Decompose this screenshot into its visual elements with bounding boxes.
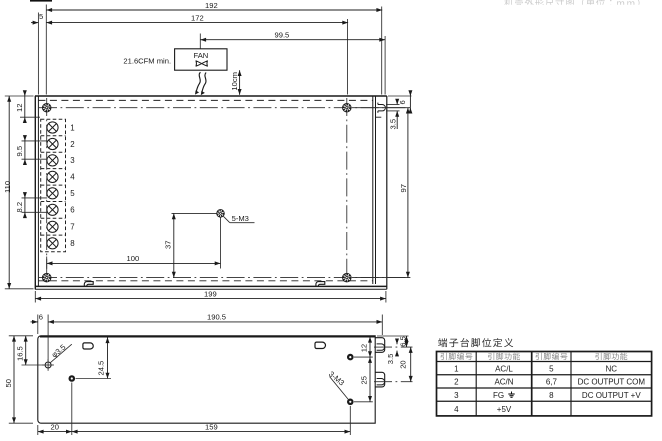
svg-text:1: 1 xyxy=(70,123,74,132)
svg-text:172: 172 xyxy=(191,14,204,23)
svg-text:20: 20 xyxy=(398,360,407,368)
svg-text:192: 192 xyxy=(205,1,218,10)
svg-text:8: 8 xyxy=(70,239,75,248)
svg-text:3.5: 3.5 xyxy=(386,354,395,365)
svg-text:1: 1 xyxy=(454,364,459,373)
svg-text:3.5: 3.5 xyxy=(389,119,398,130)
svg-text:16.5: 16.5 xyxy=(16,346,25,361)
svg-text:DC OUTPUT COM: DC OUTPUT COM xyxy=(578,378,646,387)
svg-text:6.5: 6.5 xyxy=(398,336,407,347)
svg-text:5: 5 xyxy=(70,189,75,198)
svg-text:4: 4 xyxy=(454,405,459,414)
svg-text:12: 12 xyxy=(15,104,24,112)
svg-text:97: 97 xyxy=(399,184,408,192)
svg-text:100: 100 xyxy=(127,254,140,263)
svg-text:20: 20 xyxy=(51,423,59,432)
svg-text:9.5: 9.5 xyxy=(15,146,24,157)
svg-text:8.2: 8.2 xyxy=(15,202,24,213)
svg-text:FG: FG xyxy=(493,391,504,400)
svg-text:110: 110 xyxy=(3,181,12,193)
svg-text:24.5: 24.5 xyxy=(97,361,106,376)
svg-text:φ3.5: φ3.5 xyxy=(50,343,68,360)
svg-text:3: 3 xyxy=(454,391,459,400)
svg-text:NC: NC xyxy=(606,364,618,373)
svg-text:10cm: 10cm xyxy=(230,72,239,91)
svg-text:6: 6 xyxy=(39,313,43,322)
svg-text:25: 25 xyxy=(359,376,368,384)
svg-text:6: 6 xyxy=(398,100,407,104)
svg-text:2: 2 xyxy=(454,378,459,387)
svg-text:199: 199 xyxy=(204,290,217,299)
svg-text:99.5: 99.5 xyxy=(275,30,290,39)
svg-text:2: 2 xyxy=(70,140,74,149)
svg-text:8: 8 xyxy=(549,391,554,400)
svg-text:190.5: 190.5 xyxy=(207,313,226,322)
svg-text:50: 50 xyxy=(4,379,13,387)
svg-text:+5V: +5V xyxy=(497,405,512,414)
svg-text:5-M3: 5-M3 xyxy=(232,214,249,223)
svg-text:AC/L: AC/L xyxy=(495,364,513,373)
svg-text:6: 6 xyxy=(70,206,75,215)
svg-text:37: 37 xyxy=(163,241,172,249)
svg-text:21.6CFM min.: 21.6CFM min. xyxy=(123,56,171,65)
svg-text:DC OUTPUT +V: DC OUTPUT +V xyxy=(582,391,641,400)
svg-text:5: 5 xyxy=(39,12,43,21)
svg-text:5: 5 xyxy=(549,364,554,373)
svg-text:7: 7 xyxy=(70,223,74,232)
svg-text:4: 4 xyxy=(70,173,75,182)
svg-text:FAN: FAN xyxy=(194,51,209,60)
svg-text:12: 12 xyxy=(359,344,368,352)
svg-text:3: 3 xyxy=(70,156,75,165)
svg-text:AC/N: AC/N xyxy=(494,378,513,387)
svg-text:6,7: 6,7 xyxy=(546,378,558,387)
svg-text:159: 159 xyxy=(205,423,218,432)
